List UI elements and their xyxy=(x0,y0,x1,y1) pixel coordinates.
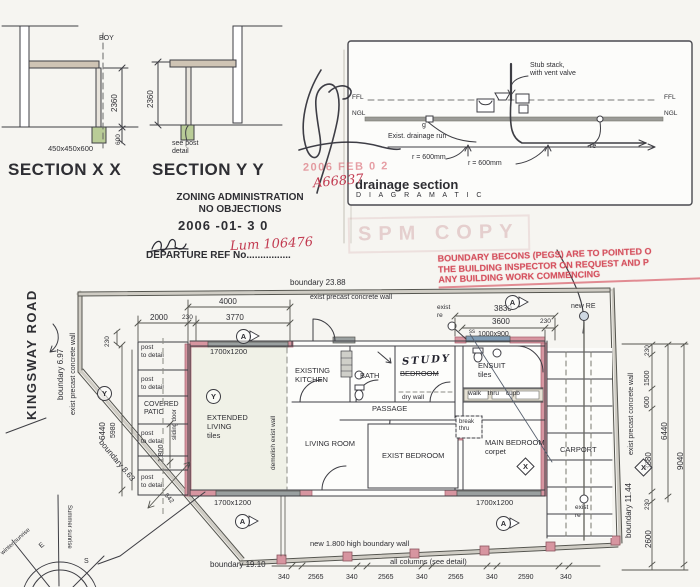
columns-note: all columns (see detail) xyxy=(390,558,467,567)
road-name-label: KINGSWAY ROAD xyxy=(24,289,39,420)
ffl-left-label: FFL xyxy=(352,94,364,102)
dim-6440-right: 6440 xyxy=(660,422,669,440)
window-bottom-left-label: 1700x1200 xyxy=(214,499,251,508)
dim-bottom-9: 340 xyxy=(560,574,572,582)
compass-rose xyxy=(12,492,205,587)
section-xx-title: SECTION X X xyxy=(8,160,121,180)
drainage-run-label: Exist. drainage run xyxy=(388,133,446,141)
dim-2600-right: 2600 xyxy=(644,530,653,548)
dim-bottom-5: 340 xyxy=(416,574,428,582)
walk-thru-note: walk thru cupb xyxy=(468,390,520,398)
boundary-columns xyxy=(277,496,555,564)
dim-3770: 3770 xyxy=(226,313,244,322)
room-living-room: LIVING ROOM xyxy=(305,440,355,449)
section-yy-post-note: see post detail xyxy=(172,140,198,157)
compass-summer-label: Summer sunrise xyxy=(65,505,72,549)
window-1000x900-label: 1000x900 xyxy=(478,331,509,339)
radius-label-2: r = 600mm xyxy=(468,160,502,168)
section-xx-height-dim: 2360 xyxy=(110,94,119,112)
room-main-bedroom: MAIN BEDROOM corpet xyxy=(485,439,545,457)
wall-left-label: exist precast concrete wall xyxy=(70,333,78,415)
section-xx-footing-size: 450x450x600 xyxy=(48,145,93,154)
marker-a-bottom-left: A xyxy=(235,514,250,529)
section-yy-title: SECTION Y Y xyxy=(152,160,264,180)
new-wall-note: new 1.800 high boundary wall xyxy=(310,540,409,549)
post-note-3: post to detail xyxy=(141,430,164,445)
room-existing-kitchen: EXISTING KITCHEN xyxy=(295,367,330,385)
ffl-right-label: FFL xyxy=(664,94,676,102)
section-yy-drawing xyxy=(150,26,282,141)
new-re-label: new RE xyxy=(571,303,596,311)
approval-date: 2006 -01- 3 0 xyxy=(178,218,268,233)
boy-line-label: BOY xyxy=(99,35,114,43)
re-label: re xyxy=(590,143,596,151)
dim-1800-left: 1.800 xyxy=(158,444,166,462)
dim-230-right-a: 230 xyxy=(644,345,652,356)
post-note-2: post to detail xyxy=(141,376,164,391)
dim-9040-right: 9040 xyxy=(676,452,685,470)
marker-a-top-right: A xyxy=(505,295,520,310)
zoning-stamp: ZONING ADMINISTRATION NO OBJECTIONS xyxy=(150,192,330,216)
drainage-subtitle: D I A G R A M A T I C xyxy=(356,192,485,200)
room-exist-bedroom: EXIST BEDROOM xyxy=(382,452,444,461)
ss-note: ss xyxy=(469,329,475,336)
exist-re-top-label: exist re xyxy=(437,304,450,319)
room-extended-living: EXTENDED LIVING tiles xyxy=(207,414,248,441)
dim-230-top-right: 230 xyxy=(540,318,551,326)
dim-230-right-b: 230 xyxy=(644,499,652,510)
compass-south-label: S xyxy=(84,558,89,566)
dim-6440-left: 6440 xyxy=(98,422,107,440)
dim-bottom-7: 340 xyxy=(486,574,498,582)
marker-a-bottom-right: A xyxy=(496,516,511,531)
section-xx-drawing xyxy=(2,26,138,148)
stub-stack-note: Stub stack, with vent valve xyxy=(530,62,576,79)
exist-re-bottom-label: exist re xyxy=(575,504,588,519)
dry-wall-note: dry wall xyxy=(402,394,424,402)
wall-right-label: exist precast concrete wall xyxy=(628,373,636,455)
dim-bottom-3: 340 xyxy=(346,574,358,582)
marker-y-living: Y xyxy=(206,389,221,404)
dim-600-right: 600 xyxy=(644,396,652,408)
demolish-note: demolish exist wall xyxy=(270,416,278,470)
ngl-left-label: NGL xyxy=(352,110,365,118)
room-study-original: BEDROOM xyxy=(400,370,439,379)
dim-bottom-1: 340 xyxy=(278,574,290,582)
boundary-left-label: boundary 6.97 xyxy=(56,349,65,400)
drainage-title: drainage section xyxy=(355,177,458,192)
boundary-right-label: boundary 11.44 xyxy=(624,483,633,538)
post-note-1: post to detail xyxy=(141,344,164,359)
dim-bottom-6: 2565 xyxy=(448,574,464,582)
radius-label-1: r = 600mm xyxy=(412,154,446,162)
dim-5980-left: 5980 xyxy=(110,422,118,438)
dim-230-left: 230 xyxy=(104,336,112,347)
section-xx-footing-dim: 600 xyxy=(115,134,123,145)
dim-2000: 2000 xyxy=(150,313,168,322)
room-carport: CARPORT xyxy=(560,446,597,455)
room-bath: BATH xyxy=(360,372,379,381)
marker-a-top: A xyxy=(236,329,251,344)
room-passage: PASSAGE xyxy=(372,405,407,414)
section-yy-height-dim: 2360 xyxy=(146,90,155,108)
window-bottom-right-label: 1700x1200 xyxy=(476,499,513,508)
boundary-bottom-label: boundary 19.10 xyxy=(210,560,266,569)
ngl-right-label: NGL xyxy=(664,110,677,118)
dim-bottom-2: 2565 xyxy=(308,574,324,582)
dim-3600: 3600 xyxy=(492,317,510,326)
wall-top-label: exist precast concrete wall xyxy=(310,294,392,302)
gulley-label: g xyxy=(422,122,426,130)
room-ensuite: ENSUIT tiles xyxy=(478,362,506,380)
dim-bottom-8: 2590 xyxy=(518,574,534,582)
scanned-building-plan: BOY 2360 600 450x450x600 SECTION X X 236… xyxy=(0,0,700,587)
marker-y-left: Y xyxy=(97,386,112,401)
dim-1500-right: 1500 xyxy=(644,370,652,386)
dim-230-top: 230 xyxy=(182,314,193,322)
room-covered-patio: COVERED PATIO xyxy=(144,401,179,418)
boundary-top-label: boundary 23.88 xyxy=(290,278,346,287)
post-note-4: post to detail xyxy=(141,474,164,489)
window-top-label: 1700x1200 xyxy=(210,348,247,357)
dim-4000: 4000 xyxy=(219,297,237,306)
drainage-diagram xyxy=(344,41,692,243)
copy-stamp: SPM COPY xyxy=(348,214,530,253)
dim-bottom-4: 2565 xyxy=(378,574,394,582)
break-thru-note: break thru xyxy=(459,419,474,433)
